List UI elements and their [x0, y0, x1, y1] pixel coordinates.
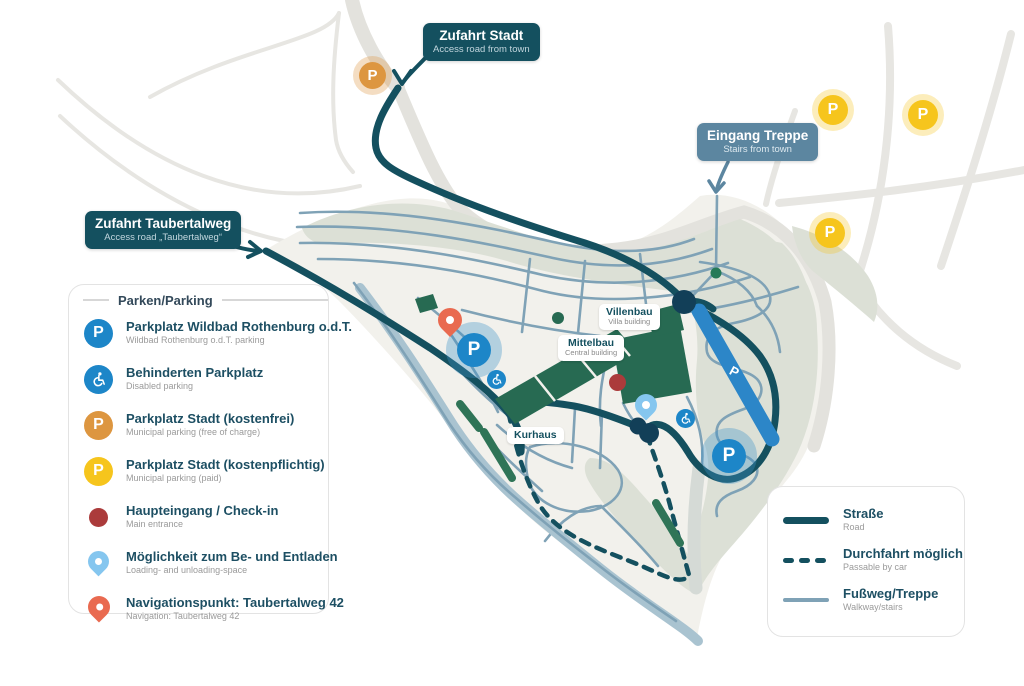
legend-item-title: Parkplatz Stadt (kostenfrei)	[126, 412, 294, 427]
road-line-swatch	[783, 517, 829, 524]
loading-pin-icon	[84, 546, 114, 576]
legend-item-road: Straße Road	[768, 500, 964, 540]
legend-item-subtitle: Passable by car	[843, 562, 963, 573]
parking-p-icon: P	[468, 339, 481, 361]
legend-item-title: Parkplatz Stadt (kostenpflichtig)	[126, 458, 325, 473]
legend-item-walkway: Fußweg/Treppe Walkway/stairs	[768, 580, 964, 620]
dashed-line-swatch	[783, 558, 826, 563]
wildbad-parking-marker-east: P	[712, 439, 746, 473]
legend-item-disabled-parking: Behinderten Parkplatz Disabled parking	[69, 356, 328, 402]
gray-walk-band	[694, 468, 699, 588]
legend-item-subtitle: Walkway/stairs	[843, 602, 938, 613]
parking-p-icon: P	[723, 445, 736, 467]
parking-p-icon: P	[918, 106, 929, 124]
label-mittelbau: Mittelbau Central building	[558, 335, 624, 361]
legend-item-main-entrance: Haupteingang / Check-in Main entrance	[69, 494, 328, 540]
navigation-pin-icon	[83, 591, 114, 622]
legend-item-subtitle: Road	[843, 522, 883, 533]
parking-blue-icon: P	[84, 319, 113, 348]
legend-item-title: Fußweg/Treppe	[843, 587, 938, 601]
walkway-line-swatch	[783, 598, 829, 602]
wildbad-parking-marker-west: P	[457, 333, 491, 367]
legend-item-subtitle: Main entrance	[126, 519, 278, 530]
legend-item-municipal-paid: P Parkplatz Stadt (kostenpflichtig) Muni…	[69, 448, 328, 494]
legend-item-subtitle: Navigation: Taubertalweg 42	[126, 611, 344, 622]
legend-item-wildbad-parking: P Parkplatz Wildbad Rothenburg o.d.T. Wi…	[69, 310, 328, 356]
main-entrance-marker	[609, 374, 626, 391]
legend-item-title: Straße	[843, 507, 883, 521]
parking-p-icon: P	[367, 67, 377, 84]
legend-item-loading-zone: Möglichkeit zum Be- und Entladen Loading…	[69, 540, 328, 586]
callout-title: Zufahrt Taubertalweg	[95, 216, 231, 232]
disabled-parking-marker-west	[487, 370, 506, 389]
callout-eingang-treppe: Eingang Treppe Stairs from town	[697, 123, 818, 161]
parking-p-icon: P	[828, 101, 839, 119]
legend-item-subtitle: Municipal parking (free of charge)	[126, 427, 294, 438]
site-map: P P P P P P P Zufahrt Stadt Access road …	[0, 0, 1024, 686]
municipal-free-parking-marker: P	[359, 62, 386, 89]
municipal-paid-parking-marker-2: P	[908, 100, 938, 130]
legend-item-subtitle: Loading- and unloading-space	[126, 565, 338, 576]
legend-item-subtitle: Municipal parking (paid)	[126, 473, 325, 484]
legend-item-title: Behinderten Parkplatz	[126, 366, 263, 381]
wheelchair-icon	[90, 371, 107, 388]
legend-item-navigation-point: Navigationspunkt: Taubertalweg 42 Naviga…	[69, 586, 328, 632]
wheelchair-icon	[679, 412, 692, 425]
entrance-dot-icon	[89, 508, 108, 527]
disabled-parking-marker-east	[676, 409, 695, 428]
callout-title: Zufahrt Stadt	[433, 28, 530, 44]
callout-subtitle: Stairs from town	[707, 144, 808, 155]
parking-orange-icon: P	[84, 411, 113, 440]
callout-zufahrt-stadt: Zufahrt Stadt Access road from town	[423, 23, 540, 61]
building-title: Kurhaus	[514, 429, 557, 441]
callout-title: Eingang Treppe	[707, 128, 808, 144]
legend-item-subtitle: Disabled parking	[126, 381, 263, 392]
label-villenbau: Villenbau Villa building	[599, 304, 660, 330]
parking-legend-header: Parken/Parking	[69, 290, 328, 310]
legend-item-drive-through: Durchfahrt möglich Passable by car	[768, 540, 964, 580]
wheelchair-icon	[490, 373, 503, 386]
legend-item-title: Möglichkeit zum Be- und Entladen	[126, 550, 338, 565]
municipal-paid-parking-marker-3: P	[815, 218, 845, 248]
parking-legend-title: Parken/Parking	[118, 293, 213, 308]
parking-legend: Parken/Parking P Parkplatz Wildbad Rothe…	[68, 284, 329, 614]
legend-item-municipal-free: P Parkplatz Stadt (kostenfrei) Municipal…	[69, 402, 328, 448]
route-legend: Straße Road Durchfahrt möglich Passable …	[767, 486, 965, 637]
parking-yellow-icon: P	[84, 457, 113, 486]
municipal-paid-parking-marker-1: P	[818, 95, 848, 125]
legend-item-subtitle: Wildbad Rothenburg o.d.T. parking	[126, 335, 352, 346]
callout-subtitle: Access road from town	[433, 44, 530, 55]
legend-item-title: Parkplatz Wildbad Rothenburg o.d.T.	[126, 320, 352, 335]
legend-item-title: Durchfahrt möglich	[843, 547, 963, 561]
callout-zufahrt-taubertalweg: Zufahrt Taubertalweg Access road „Tauber…	[85, 211, 241, 249]
building-subtitle: Central building	[565, 349, 617, 358]
legend-item-title: Navigationspunkt: Taubertalweg 42	[126, 596, 344, 611]
disabled-parking-icon	[84, 365, 113, 394]
building-subtitle: Villa building	[606, 318, 653, 327]
legend-item-title: Haupteingang / Check-in	[126, 504, 278, 519]
label-kurhaus: Kurhaus	[507, 427, 564, 444]
parking-p-icon: P	[825, 224, 836, 242]
callout-subtitle: Access road „Taubertalweg“	[95, 232, 231, 243]
